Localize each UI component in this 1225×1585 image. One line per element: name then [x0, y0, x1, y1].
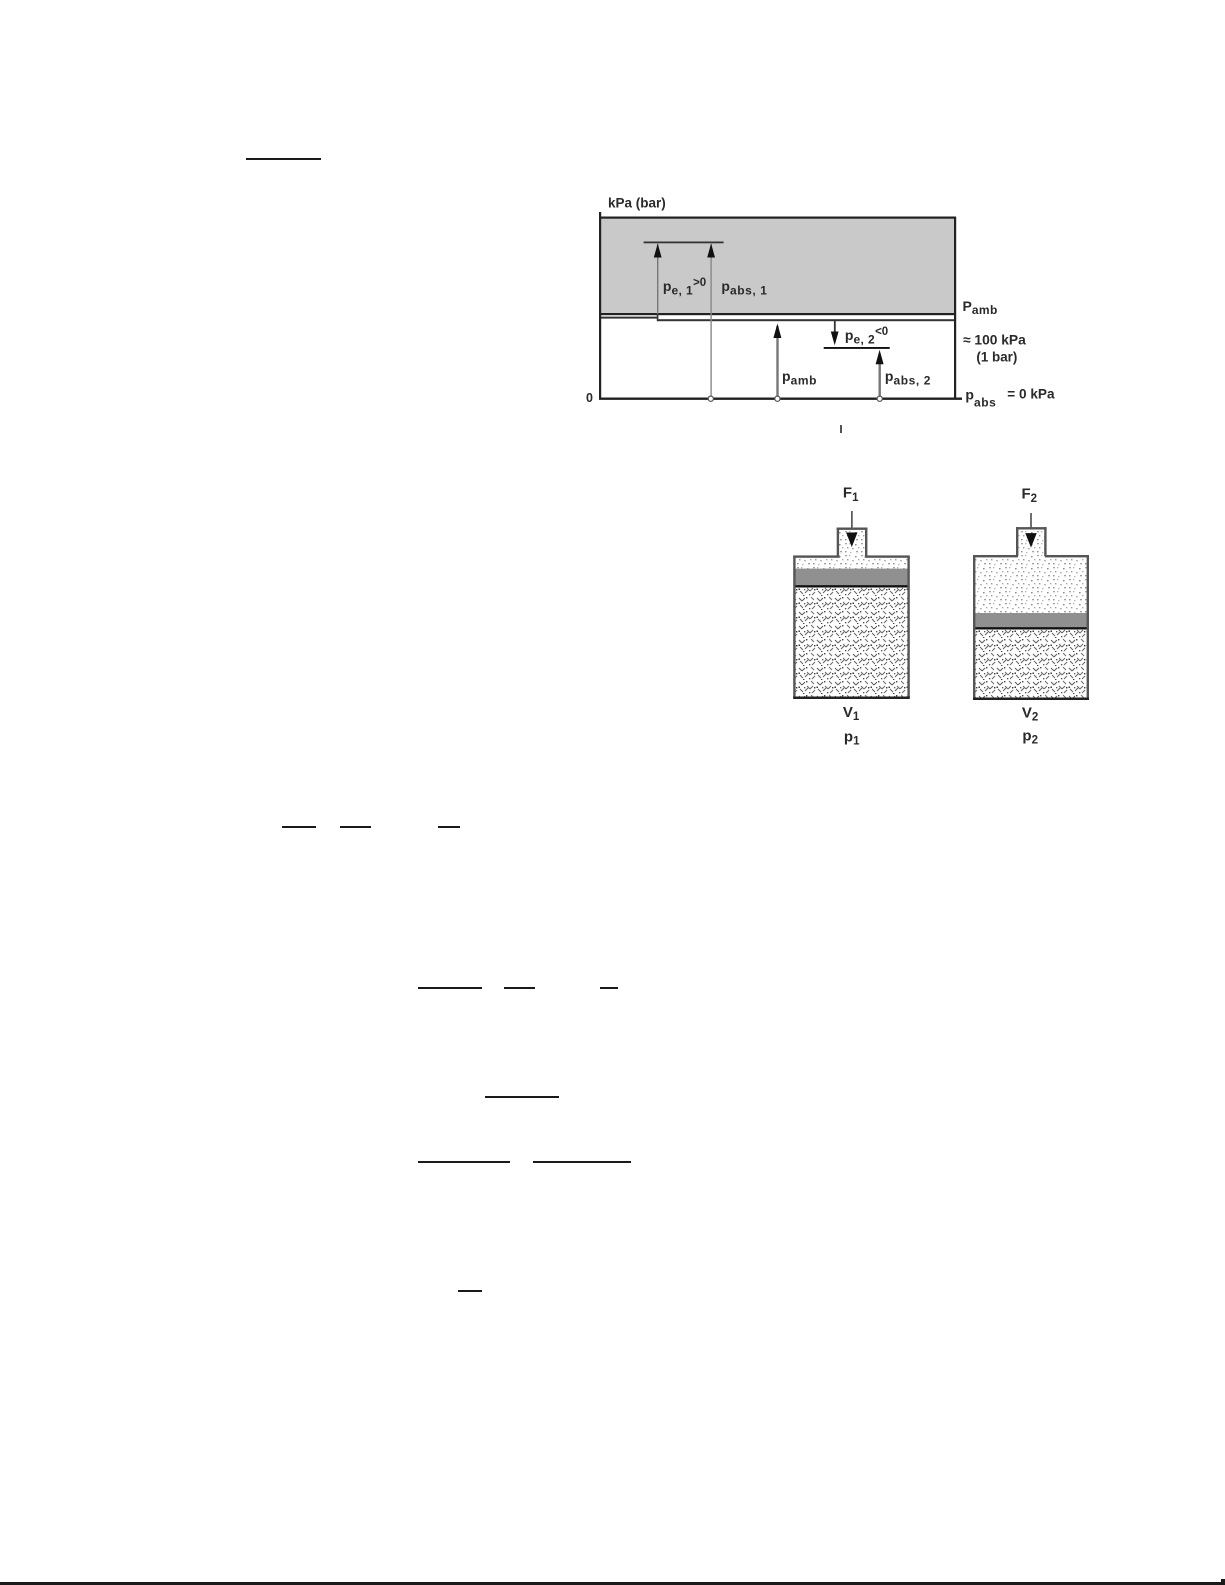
svg-text:pamb: pamb [782, 368, 817, 388]
svg-text:kPa (bar): kPa (bar) [608, 196, 666, 211]
svg-text:F1: F1 [843, 485, 859, 504]
svg-text:≈ 100 kPa: ≈ 100 kPa [963, 333, 1026, 348]
svg-text:pabs, 2: pabs, 2 [885, 368, 931, 388]
svg-text:(1 bar): (1 bar) [976, 350, 1017, 365]
svg-text:= 0 kPa: = 0 kPa [1007, 387, 1055, 402]
svg-text:pabs: pabs [965, 386, 996, 409]
svg-text:V2: V2 [1022, 704, 1038, 723]
svg-text:F2: F2 [1022, 486, 1038, 505]
svg-text:V1: V1 [843, 704, 860, 723]
svg-text:Pamb: Pamb [963, 298, 998, 317]
svg-text:0: 0 [586, 391, 593, 405]
svg-text:p2: p2 [1022, 727, 1038, 746]
svg-text:p1: p1 [844, 729, 860, 748]
svg-text:pe, 2<0: pe, 2<0 [845, 326, 888, 347]
